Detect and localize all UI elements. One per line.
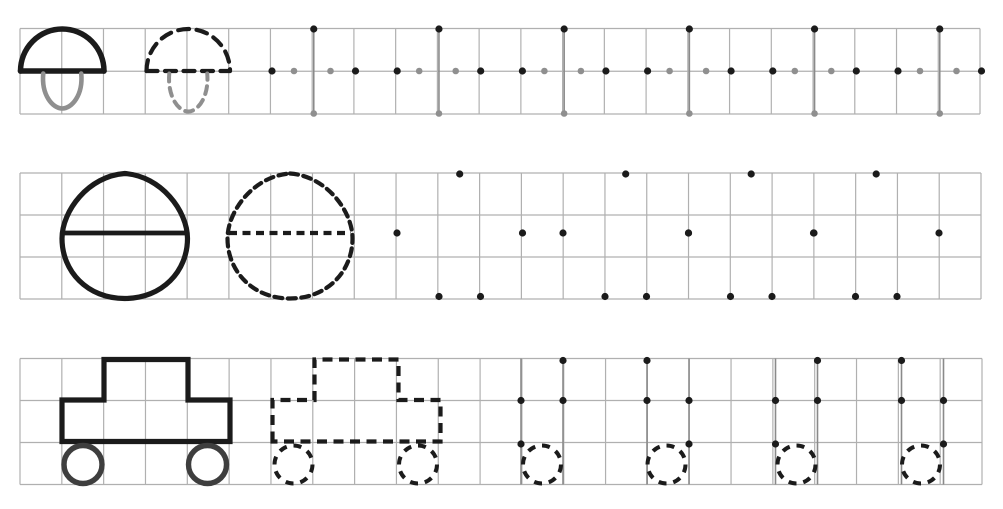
worksheet-canvas [0,0,1003,509]
trace-dot [728,67,735,74]
trace-dot [936,25,943,32]
trace-dot [894,67,901,74]
trace-dot [814,357,821,364]
trace-dot-muted [828,68,835,75]
trace-dot [435,25,442,32]
trace-dot [352,67,359,74]
trace-dot [643,293,650,300]
trace-dot [393,229,400,236]
trace-dot [898,397,905,404]
trace-dot [811,25,818,32]
egg-solid-outline [62,174,188,299]
trace-dot [477,67,484,74]
car-dashed-wheel [399,446,437,484]
trace-dot [768,293,775,300]
trace-dot [601,293,608,300]
trace-dot [852,293,859,300]
trace-dot-muted [936,110,943,117]
trace-dot [685,397,692,404]
trace-dot-muted [416,68,423,75]
band-car [20,357,982,485]
trace-dot-muted [561,110,568,117]
trace-dot [643,357,650,364]
trace-dot-muted [811,110,818,117]
trace-dot-muted [792,68,799,75]
trace-dot [873,170,880,177]
trace-dot [519,229,526,236]
trace-dot [643,397,650,404]
car-solid-wheel [189,446,227,484]
trace-dot [686,25,693,32]
worksheet-page [0,0,1003,509]
trace-dot [456,170,463,177]
trace-dot-muted [291,68,298,75]
trace-wheel-dashed [648,446,686,484]
trace-dot-muted [703,68,710,75]
trace-dot [727,293,734,300]
trace-dot [394,67,401,74]
trace-dot [814,397,821,404]
trace-wheel-dashed [902,446,940,484]
car-dashed-wheel [275,446,313,484]
trace-dot-muted [578,68,585,75]
trace-dot [268,67,275,74]
trace-dot [893,293,900,300]
trace-dot [685,440,692,447]
trace-dot-muted [327,68,334,75]
trace-dot [772,397,779,404]
trace-dot [435,293,442,300]
trace-dot [559,357,566,364]
trace-dot [898,357,905,364]
trace-dot [519,67,526,74]
trace-wheel-dashed [523,446,561,484]
trace-dot [853,67,860,74]
trace-dot-muted [953,68,960,75]
band-mushroom [20,25,985,116]
mushroom-dashed-cap [147,29,231,71]
trace-dot [810,229,817,236]
trace-dot [559,397,566,404]
trace-dot-muted [436,110,443,117]
trace-dot [978,67,985,74]
trace-dot [769,67,776,74]
trace-dot [940,397,947,404]
trace-dot [644,67,651,74]
trace-dot [517,440,524,447]
trace-dot [559,229,566,236]
trace-dot-muted [541,68,548,75]
egg-dashed-outline [228,174,353,299]
trace-dot-muted [917,68,924,75]
trace-dot-muted [310,110,317,117]
trace-dot-muted [666,68,673,75]
trace-dot [940,440,947,447]
trace-dot [685,229,692,236]
trace-dot [310,25,317,32]
trace-dot [935,229,942,236]
trace-dot-muted [686,110,693,117]
trace-dot [517,397,524,404]
trace-dot [622,170,629,177]
trace-dot [477,293,484,300]
trace-grid-car [20,359,982,485]
trace-dot [602,67,609,74]
trace-dot-muted [452,68,459,75]
trace-wheel-dashed [778,446,816,484]
trace-dot [748,170,755,177]
trace-dot [561,25,568,32]
band-egg [20,170,981,300]
trace-dot [772,440,779,447]
car-solid-wheel [64,446,102,484]
mushroom-dashed-stem [169,74,207,112]
